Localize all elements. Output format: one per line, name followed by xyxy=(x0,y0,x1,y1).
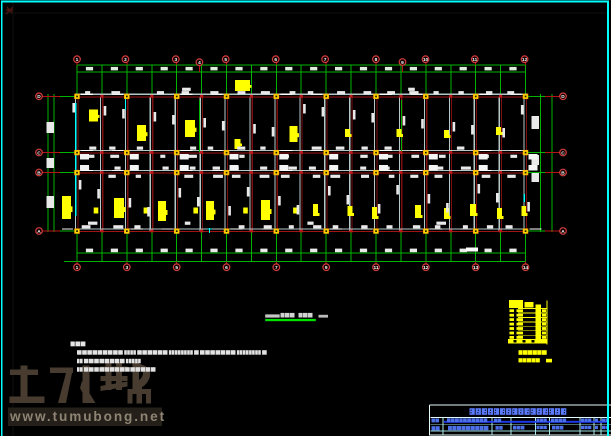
svg-text:3: 3 xyxy=(125,265,128,271)
svg-text:6: 6 xyxy=(274,57,277,63)
svg-text:A: A xyxy=(561,229,565,235)
svg-text:9: 9 xyxy=(325,265,328,271)
svg-text:1: 1 xyxy=(76,57,79,63)
svg-text:8: 8 xyxy=(375,57,378,63)
svg-text:A: A xyxy=(37,229,41,235)
svg-text:6: 6 xyxy=(225,265,228,271)
svg-text:1: 1 xyxy=(76,265,79,271)
svg-text:4: 4 xyxy=(198,60,201,66)
svg-text:9: 9 xyxy=(401,60,404,66)
svg-text:B: B xyxy=(37,170,41,176)
svg-text:www.tumubong.net: www.tumubong.net xyxy=(9,409,166,424)
svg-text:14: 14 xyxy=(523,265,529,271)
svg-text:C: C xyxy=(561,150,565,156)
svg-text:11: 11 xyxy=(373,265,378,271)
svg-text:11: 11 xyxy=(472,57,477,63)
svg-text:12: 12 xyxy=(522,57,528,63)
svg-text:7: 7 xyxy=(275,265,278,271)
svg-text:B: B xyxy=(561,170,565,176)
svg-text:D: D xyxy=(561,94,565,100)
svg-text:3: 3 xyxy=(174,57,177,63)
svg-text:7: 7 xyxy=(324,57,327,63)
svg-text:13: 13 xyxy=(473,265,479,271)
svg-text:5: 5 xyxy=(175,265,178,271)
svg-text:10: 10 xyxy=(423,57,429,63)
svg-text:C: C xyxy=(37,150,41,156)
svg-text:D: D xyxy=(37,94,41,100)
svg-text:5: 5 xyxy=(224,57,227,63)
svg-text:2: 2 xyxy=(124,57,127,63)
svg-text:12: 12 xyxy=(423,265,429,271)
